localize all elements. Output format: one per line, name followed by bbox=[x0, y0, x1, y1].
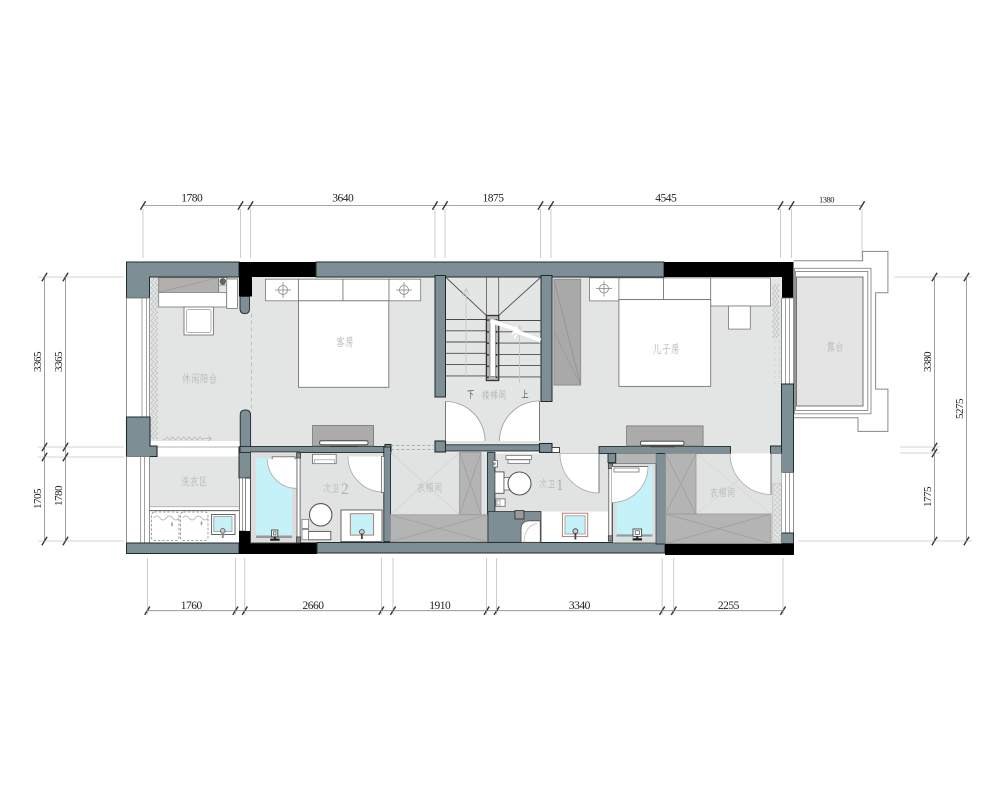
svg-text:1: 1 bbox=[556, 477, 564, 494]
svg-text:3380: 3380 bbox=[922, 351, 934, 372]
svg-text:1910: 1910 bbox=[429, 600, 451, 612]
svg-text:4545: 4545 bbox=[655, 193, 677, 205]
svg-text:5275: 5275 bbox=[954, 398, 966, 419]
svg-text:3340: 3340 bbox=[569, 600, 591, 612]
svg-text:2660: 2660 bbox=[303, 600, 325, 612]
svg-text:3365: 3365 bbox=[32, 351, 44, 372]
svg-text:3640: 3640 bbox=[332, 193, 354, 205]
svg-text:1780: 1780 bbox=[53, 485, 65, 506]
svg-text:1380: 1380 bbox=[819, 195, 834, 205]
svg-text:1775: 1775 bbox=[922, 486, 934, 507]
svg-text:1780: 1780 bbox=[181, 193, 203, 205]
svg-text:1705: 1705 bbox=[32, 488, 44, 509]
svg-text:1875: 1875 bbox=[483, 193, 505, 205]
svg-text:2255: 2255 bbox=[718, 600, 740, 612]
svg-text:3365: 3365 bbox=[53, 351, 65, 372]
svg-text:1760: 1760 bbox=[181, 600, 203, 612]
svg-text:2: 2 bbox=[341, 481, 349, 498]
